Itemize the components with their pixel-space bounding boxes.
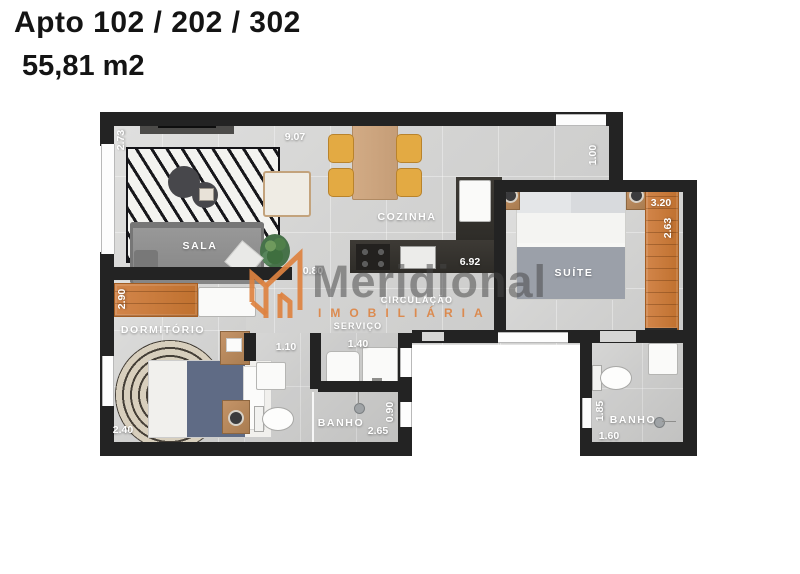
wall-segment — [100, 112, 114, 146]
dim-label: 2.40 — [103, 424, 143, 436]
window — [556, 114, 606, 126]
armchair — [263, 171, 311, 217]
dining-chair — [328, 168, 354, 197]
door-opening — [422, 332, 444, 341]
wall-segment — [318, 381, 400, 392]
lamp-icon — [228, 410, 244, 426]
dining-chair — [328, 134, 354, 163]
dining-table — [352, 124, 398, 200]
dim-label: 1.40 — [338, 338, 378, 350]
dim-label: 1.60 — [589, 430, 629, 442]
bathroom-sink — [648, 343, 678, 375]
window — [498, 332, 568, 343]
dim-label: 9.07 — [275, 131, 315, 143]
shower-pipe — [358, 390, 359, 404]
window — [400, 402, 412, 427]
room-label-servico: SERVIÇO — [313, 321, 403, 335]
desk-paper — [226, 338, 242, 352]
bathroom-sink — [256, 362, 286, 390]
room-label-dormitorio: DORMITÓRIO — [118, 324, 208, 338]
room-label-sala: SALA — [155, 240, 245, 254]
dim-label: 2.63 — [662, 208, 674, 248]
window — [102, 356, 114, 406]
toilet — [600, 366, 632, 390]
dim-label: 1.85 — [594, 391, 606, 431]
window — [400, 348, 412, 377]
door-opening — [600, 331, 636, 342]
dining-chair — [396, 134, 422, 163]
apartment-area: 55,81 m2 — [22, 50, 145, 83]
dim-label: 2.65 — [358, 425, 398, 437]
wall-segment — [494, 180, 696, 192]
wall-segment — [244, 333, 256, 361]
dining-chair — [396, 168, 422, 197]
toilet — [262, 407, 294, 431]
room-label-cozinha: COZINHA — [362, 211, 452, 225]
watermark-tagline: IMOBILIÁRIA — [318, 306, 492, 320]
watermark-brand: Meridional — [312, 256, 547, 308]
dim-label: 3.20 — [641, 197, 681, 209]
wall-segment — [100, 252, 114, 445]
dim-label: 1.00 — [587, 135, 599, 175]
dim-label: 2.73 — [115, 120, 127, 160]
shower-head-icon — [354, 403, 365, 414]
dim-label: 1.10 — [266, 341, 306, 353]
wall-segment — [580, 442, 697, 456]
fridge — [459, 180, 491, 222]
wall-segment — [100, 112, 623, 126]
meridional-logo-icon — [246, 248, 310, 320]
wall-segment — [683, 180, 697, 456]
window — [101, 144, 115, 254]
tray — [199, 188, 214, 201]
wall-segment — [100, 442, 412, 456]
dim-label: 2.90 — [116, 279, 128, 319]
floorplan-image: Apto 102 / 202 / 302 55,81 m2 — [0, 0, 800, 574]
page-title: Apto 102 / 202 / 302 — [14, 6, 301, 40]
